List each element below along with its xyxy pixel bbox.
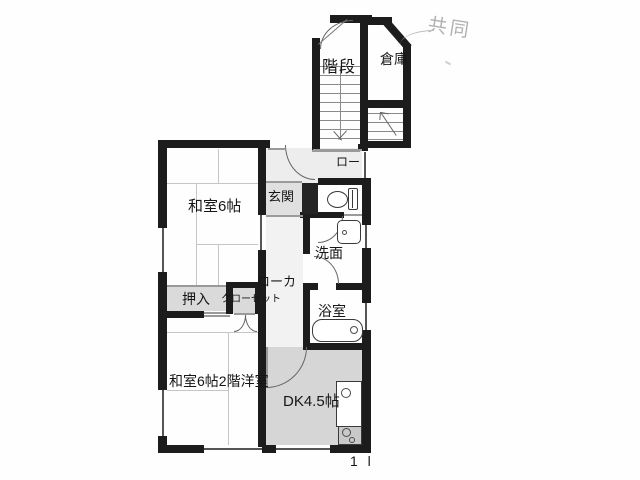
- window: [162, 390, 164, 436]
- toilet-door-line: [344, 214, 362, 216]
- kitchen-faucet: [341, 388, 351, 398]
- kitchen-sink-icon: [336, 381, 362, 427]
- hall-line: [313, 149, 362, 151]
- floorplan-page: 階段 倉庫 ロー 玄関 和室6帖 洗面 ローカ 押入 クローゼット 浴室 和室6…: [0, 0, 640, 480]
- bathtub-drain: [350, 326, 358, 334]
- wall-segment: [162, 311, 204, 318]
- room-label-entrance: 玄関: [268, 190, 294, 203]
- sliding-door: [260, 215, 262, 250]
- wall-segment: [360, 15, 368, 148]
- page-mark: 1 l: [350, 454, 374, 468]
- stair-arrow: [380, 112, 397, 136]
- room-label-japanese-room-6: 和室6帖: [188, 199, 241, 214]
- window: [204, 448, 262, 450]
- annotation-pointer-line: [400, 30, 434, 45]
- stair-arrow-head: [379, 112, 381, 120]
- wall-segment: [158, 445, 204, 453]
- room-label-dk: DK4.5帖: [283, 394, 340, 409]
- hall-line: [268, 148, 285, 150]
- room-label-closet: クローゼット: [221, 295, 281, 305]
- wall-segment: [303, 283, 318, 290]
- wall-segment: [362, 248, 371, 303]
- window: [365, 303, 367, 330]
- oshiire-sliding-door: [204, 315, 230, 317]
- sink-icon: [337, 220, 361, 244]
- tatami-line: [196, 244, 258, 245]
- window: [276, 448, 330, 450]
- wall-segment: [318, 178, 371, 185]
- wall-segment: [158, 272, 167, 390]
- wall-segment: [330, 445, 363, 453]
- stove-burner: [342, 428, 351, 437]
- wall-segment: [312, 38, 320, 150]
- closet-door-arc: [245, 315, 257, 332]
- wall-segment: [362, 178, 371, 225]
- toilet-bowl: [327, 191, 348, 208]
- stair-center-line: [340, 66, 341, 140]
- window: [162, 228, 164, 272]
- room-label-corridor: ローカ: [257, 275, 296, 288]
- tatami-line: [218, 244, 219, 285]
- tatami-line: [167, 183, 258, 184]
- stair-tread: [368, 139, 403, 140]
- stair-tread: [368, 131, 403, 132]
- wall-segment: [158, 140, 167, 228]
- wall-segment: [258, 147, 266, 215]
- wall-segment: [336, 283, 371, 290]
- room-label-oshiire: 押入: [182, 292, 210, 306]
- room-line: [167, 332, 258, 333]
- room-label-stairs: 階段: [322, 60, 356, 76]
- room-label-storage: 倉庫: [380, 52, 408, 66]
- tatami-line: [218, 149, 219, 183]
- room-line: [167, 390, 228, 391]
- room-label-bathroom: 浴室: [318, 304, 346, 318]
- wall-segment: [303, 290, 310, 347]
- wall-segment: [303, 343, 371, 350]
- room-label-japanese-room-6-2f: 和室6帖2階洋室: [169, 374, 269, 388]
- stove-burner: [349, 437, 355, 443]
- door-arc: [320, 20, 353, 49]
- room-label-upper-corridor: ロー: [336, 156, 360, 168]
- entrance-step-line: [266, 181, 302, 183]
- hall-corridor-line: [266, 215, 303, 217]
- wall-segment: [226, 282, 260, 288]
- stray-mark: [445, 61, 451, 66]
- toilet-tank-line: [352, 190, 353, 208]
- shoe-cabinet: [302, 183, 318, 214]
- wall-segment: [158, 140, 270, 148]
- wall-segment: [368, 141, 411, 148]
- sink-drain: [342, 230, 347, 235]
- window: [365, 225, 367, 248]
- wall-segment: [303, 218, 310, 254]
- room-label-washroom: 洗面: [315, 246, 343, 260]
- window: [364, 152, 366, 178]
